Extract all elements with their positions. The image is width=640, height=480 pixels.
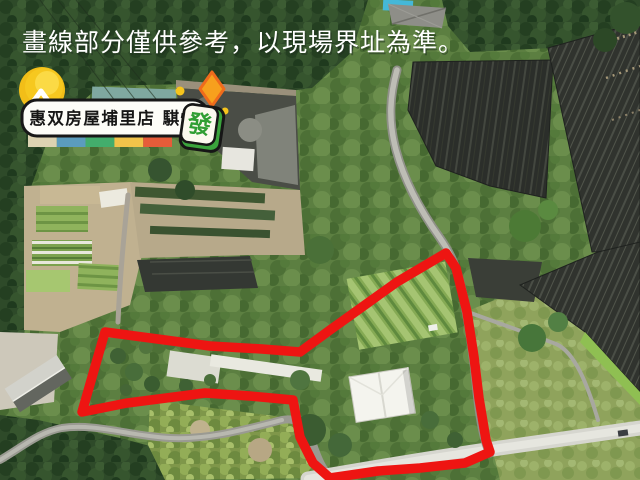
svg-text:畫線部分僅供參考，以現場界址為準。: 畫線部分僅供參考，以現場界址為準。 <box>22 28 464 57</box>
mahjong-fa-tile-icon: 發 <box>179 103 225 152</box>
disclaimer-text: 畫線部分僅供參考，以現場界址為準。 畫線部分僅供參考，以現場界址為準。 <box>22 28 466 59</box>
tile-character: 發 <box>185 109 214 140</box>
sparkle-dot <box>176 87 185 96</box>
aerial-scene: 惠双房屋埔里店 騏愷 發 畫線部分僅供參考，以現場界址為準。 畫線部分僅供參考，… <box>0 0 640 480</box>
brand-label: 惠双房屋埔里店 騏愷 <box>29 108 198 128</box>
white-roof-building <box>349 368 415 423</box>
aerial-photo: 惠双房屋埔里店 騏愷 發 畫線部分僅供參考，以現場界址為準。 畫線部分僅供參考，… <box>0 0 640 480</box>
